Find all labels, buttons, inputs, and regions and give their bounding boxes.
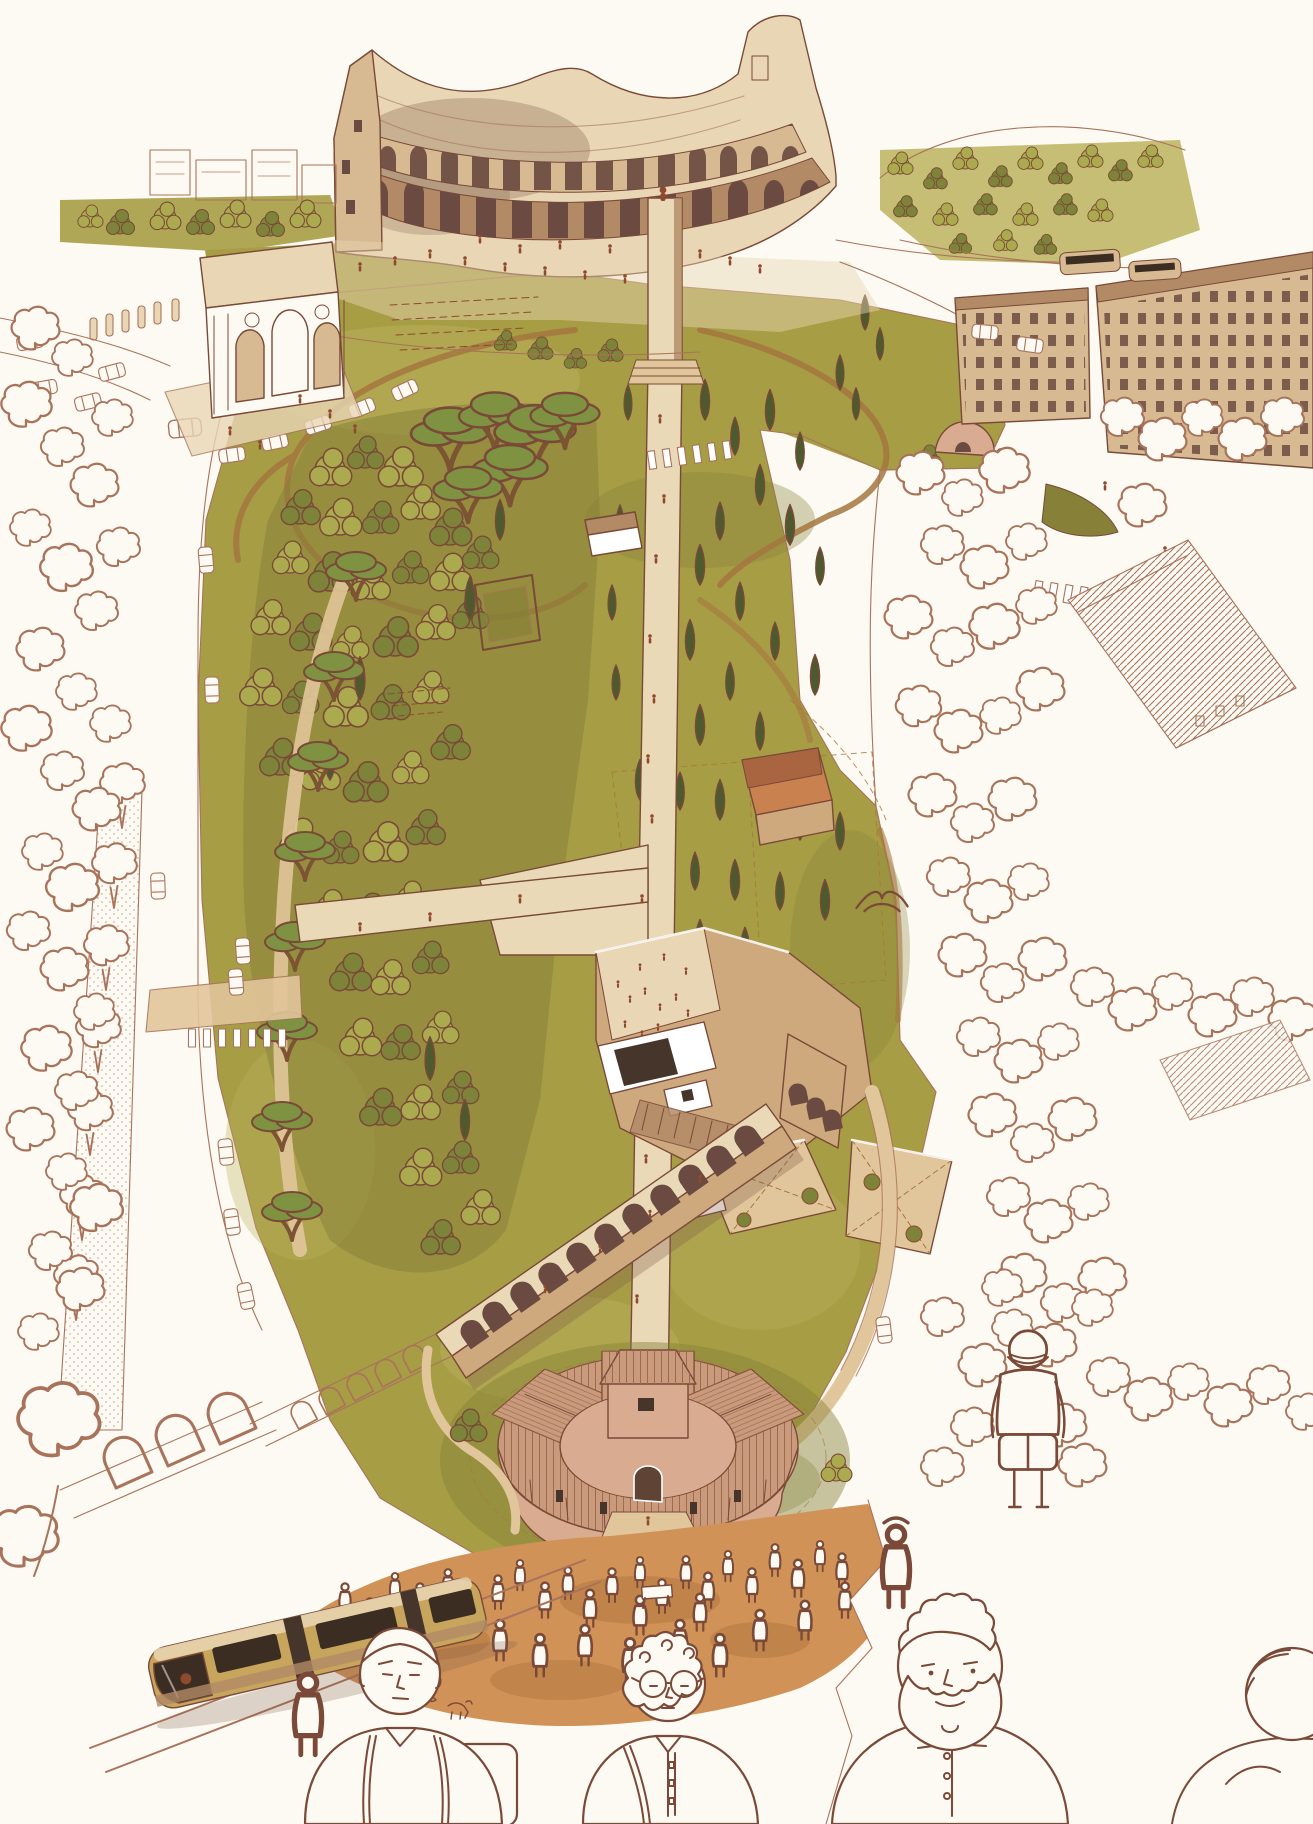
illustration-canvas [0,0,1313,1824]
aerial-illustration [0,0,1313,1824]
crosswalk-left [189,1029,286,1047]
arch-central-opening [272,310,308,396]
arch-right-opening [314,323,340,389]
church-door [634,1466,662,1502]
tower-stairs [628,360,704,384]
building-b [955,288,1090,424]
arch-left-opening [236,330,264,402]
church-lantern [600,1350,696,1438]
